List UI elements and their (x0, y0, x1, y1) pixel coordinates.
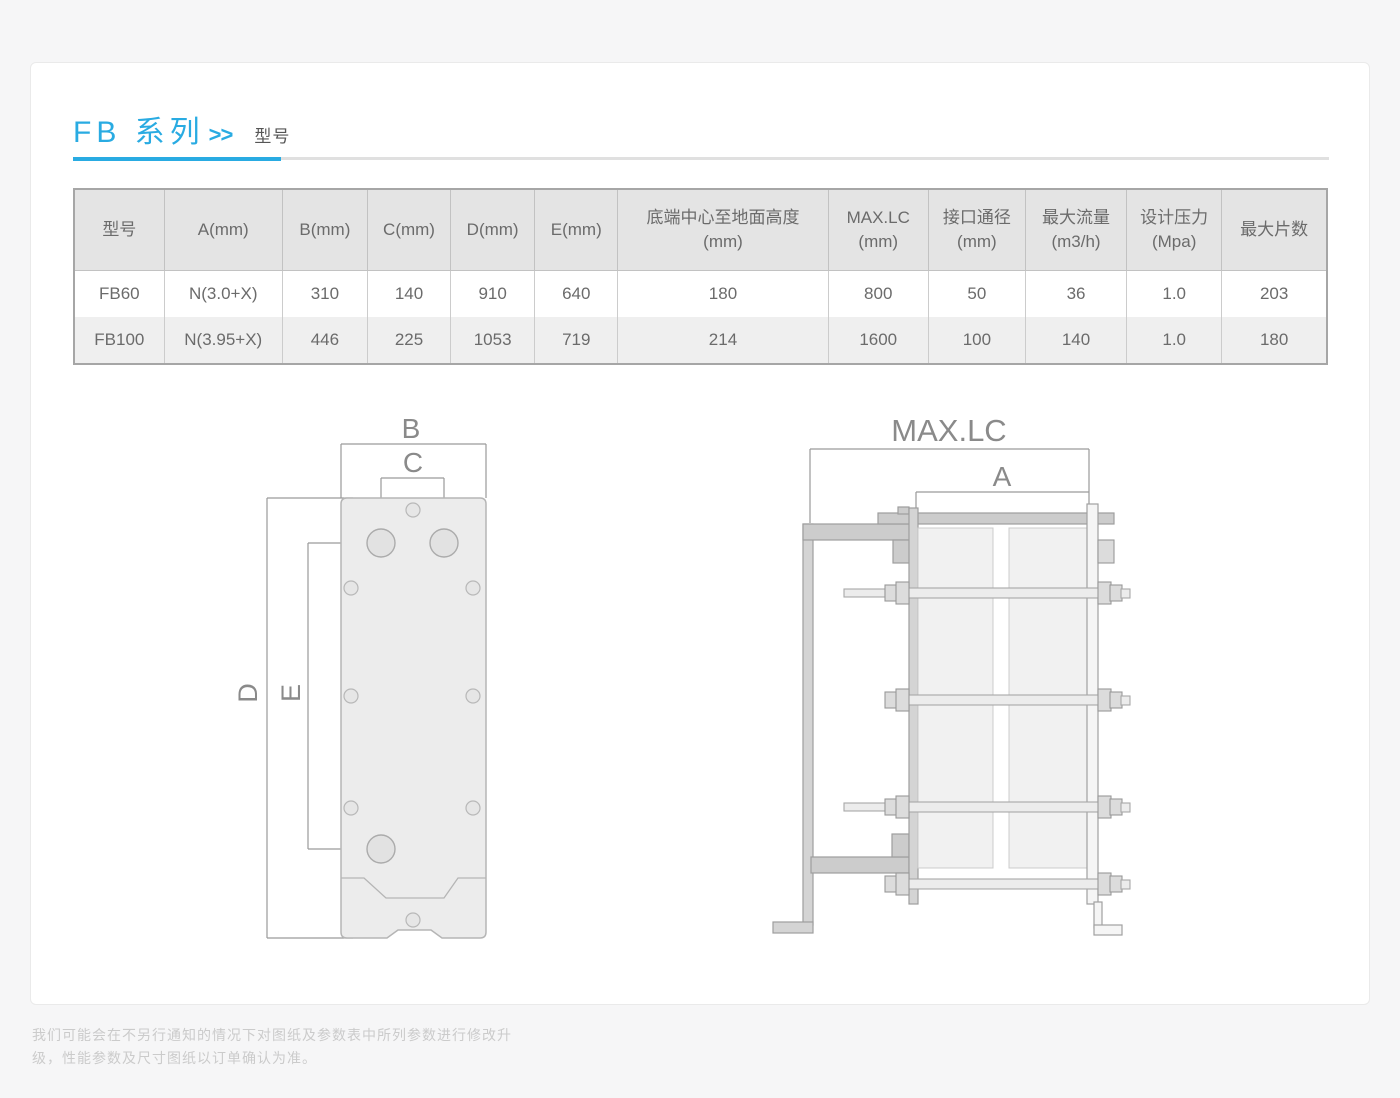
hole-left-2 (344, 689, 358, 703)
spec-table: 型号 A(mm) B(mm) C(mm) D(mm) E(mm) 底端中心至地面… (73, 188, 1328, 365)
port-top-right (430, 529, 458, 557)
dimension-a: A (916, 461, 1089, 513)
title-arrows-icon: >> (209, 122, 233, 148)
cell-value: 225 (367, 317, 450, 364)
frame-foot (1094, 925, 1122, 935)
nozzle-connection (1098, 540, 1114, 563)
disclaimer-line-2: 级，性能参数及尺寸图纸以订单确认为准。 (32, 1047, 512, 1070)
dimension-d: D (233, 498, 353, 938)
cell-value: 446 (282, 317, 367, 364)
exchanger-side-view-diagram: MAX.LC A (756, 406, 1141, 961)
cell-model: FB60 (74, 271, 164, 318)
title-underline-accent (73, 157, 281, 161)
col-header-a: A(mm) (164, 189, 282, 271)
col-header-model: 型号 (74, 189, 164, 271)
col-header-design-pressure: 设计压力(Mpa) (1127, 189, 1222, 271)
upper-carrying-bar (803, 524, 912, 540)
cell-value: 203 (1222, 271, 1327, 318)
dim-label-e: E (276, 684, 306, 702)
content-card: FB 系列 >> 型号 型号 A(mm) B(mm) C(mm) D(mm) E… (30, 62, 1370, 1005)
cell-value: 1.0 (1127, 317, 1222, 364)
cell-value: 100 (928, 317, 1025, 364)
cell-value: 180 (1222, 317, 1327, 364)
col-header-bottom-height: 底端中心至地面高度(mm) (618, 189, 828, 271)
cell-value: 36 (1025, 271, 1126, 318)
hole-right-2 (466, 689, 480, 703)
table-row-fb100: FB100 N(3.95+X) 446 225 1053 719 214 160… (74, 317, 1327, 364)
col-header-max-plates: 最大片数 (1222, 189, 1327, 271)
dim-label-c: C (403, 447, 423, 478)
cell-value: 800 (828, 271, 928, 318)
page-header: FB 系列 >> 型号 (73, 107, 290, 151)
dim-label-a: A (993, 461, 1012, 492)
plate-front-view-diagram: D E B C (231, 406, 531, 961)
cell-value: 140 (367, 271, 450, 318)
hole-left-3 (344, 801, 358, 815)
col-header-port-diameter: 接口通径(mm) (928, 189, 1025, 271)
dimension-max-lc: MAX.LC (810, 413, 1089, 523)
cell-value: 640 (535, 271, 618, 318)
col-header-d: D(mm) (451, 189, 535, 271)
col-header-c: C(mm) (367, 189, 450, 271)
hole-top-center (406, 503, 420, 517)
hole-left-1 (344, 581, 358, 595)
page-subtitle: 型号 (254, 122, 290, 147)
disclaimer: 我们可能会在不另行通知的情况下对图纸及参数表中所列参数进行修改升 级，性能参数及… (32, 1024, 512, 1070)
table-header-row: 型号 A(mm) B(mm) C(mm) D(mm) E(mm) 底端中心至地面… (74, 189, 1327, 271)
col-header-e: E(mm) (535, 189, 618, 271)
col-header-max-lc: MAX.LC(mm) (828, 189, 928, 271)
frame-foot-leg (1094, 902, 1102, 928)
cell-value: 140 (1025, 317, 1126, 364)
cell-value: 719 (535, 317, 618, 364)
support-column-foot (773, 922, 813, 933)
cell-value: 1600 (828, 317, 928, 364)
table-row-fb60: FB60 N(3.0+X) 310 140 910 640 180 800 50… (74, 271, 1327, 318)
col-header-b: B(mm) (282, 189, 367, 271)
dim-label-d: D (233, 683, 263, 703)
lower-guide-bar (811, 857, 909, 873)
cell-value: 310 (282, 271, 367, 318)
hole-right-3 (466, 801, 480, 815)
plate-body (341, 498, 486, 938)
title-underline (73, 157, 1329, 161)
page-title: FB 系列 (73, 107, 205, 151)
cell-model: FB100 (74, 317, 164, 364)
port-bottom-left (367, 835, 395, 863)
cell-value: 180 (618, 271, 828, 318)
dim-label-max-lc: MAX.LC (891, 413, 1006, 448)
cell-value: 214 (618, 317, 828, 364)
lower-bracket-block (892, 834, 909, 857)
disclaimer-line-1: 我们可能会在不另行通知的情况下对图纸及参数表中所列参数进行修改升 (32, 1024, 512, 1047)
upper-bracket-block (893, 540, 910, 563)
movable-pressure-plate (909, 508, 918, 904)
cell-value: N(3.95+X) (164, 317, 282, 364)
dim-label-b: B (402, 413, 421, 444)
guide-roller (898, 507, 909, 514)
cell-value: 910 (451, 271, 535, 318)
cell-value: 1053 (451, 317, 535, 364)
port-top-left (367, 529, 395, 557)
hole-bottom-center (406, 913, 420, 927)
cell-value: N(3.0+X) (164, 271, 282, 318)
cell-value: 1.0 (1127, 271, 1222, 318)
cell-value: 50 (928, 271, 1025, 318)
title-underline-rest (281, 157, 1329, 160)
col-header-max-flow: 最大流量(m3/h) (1025, 189, 1126, 271)
hole-right-1 (466, 581, 480, 595)
